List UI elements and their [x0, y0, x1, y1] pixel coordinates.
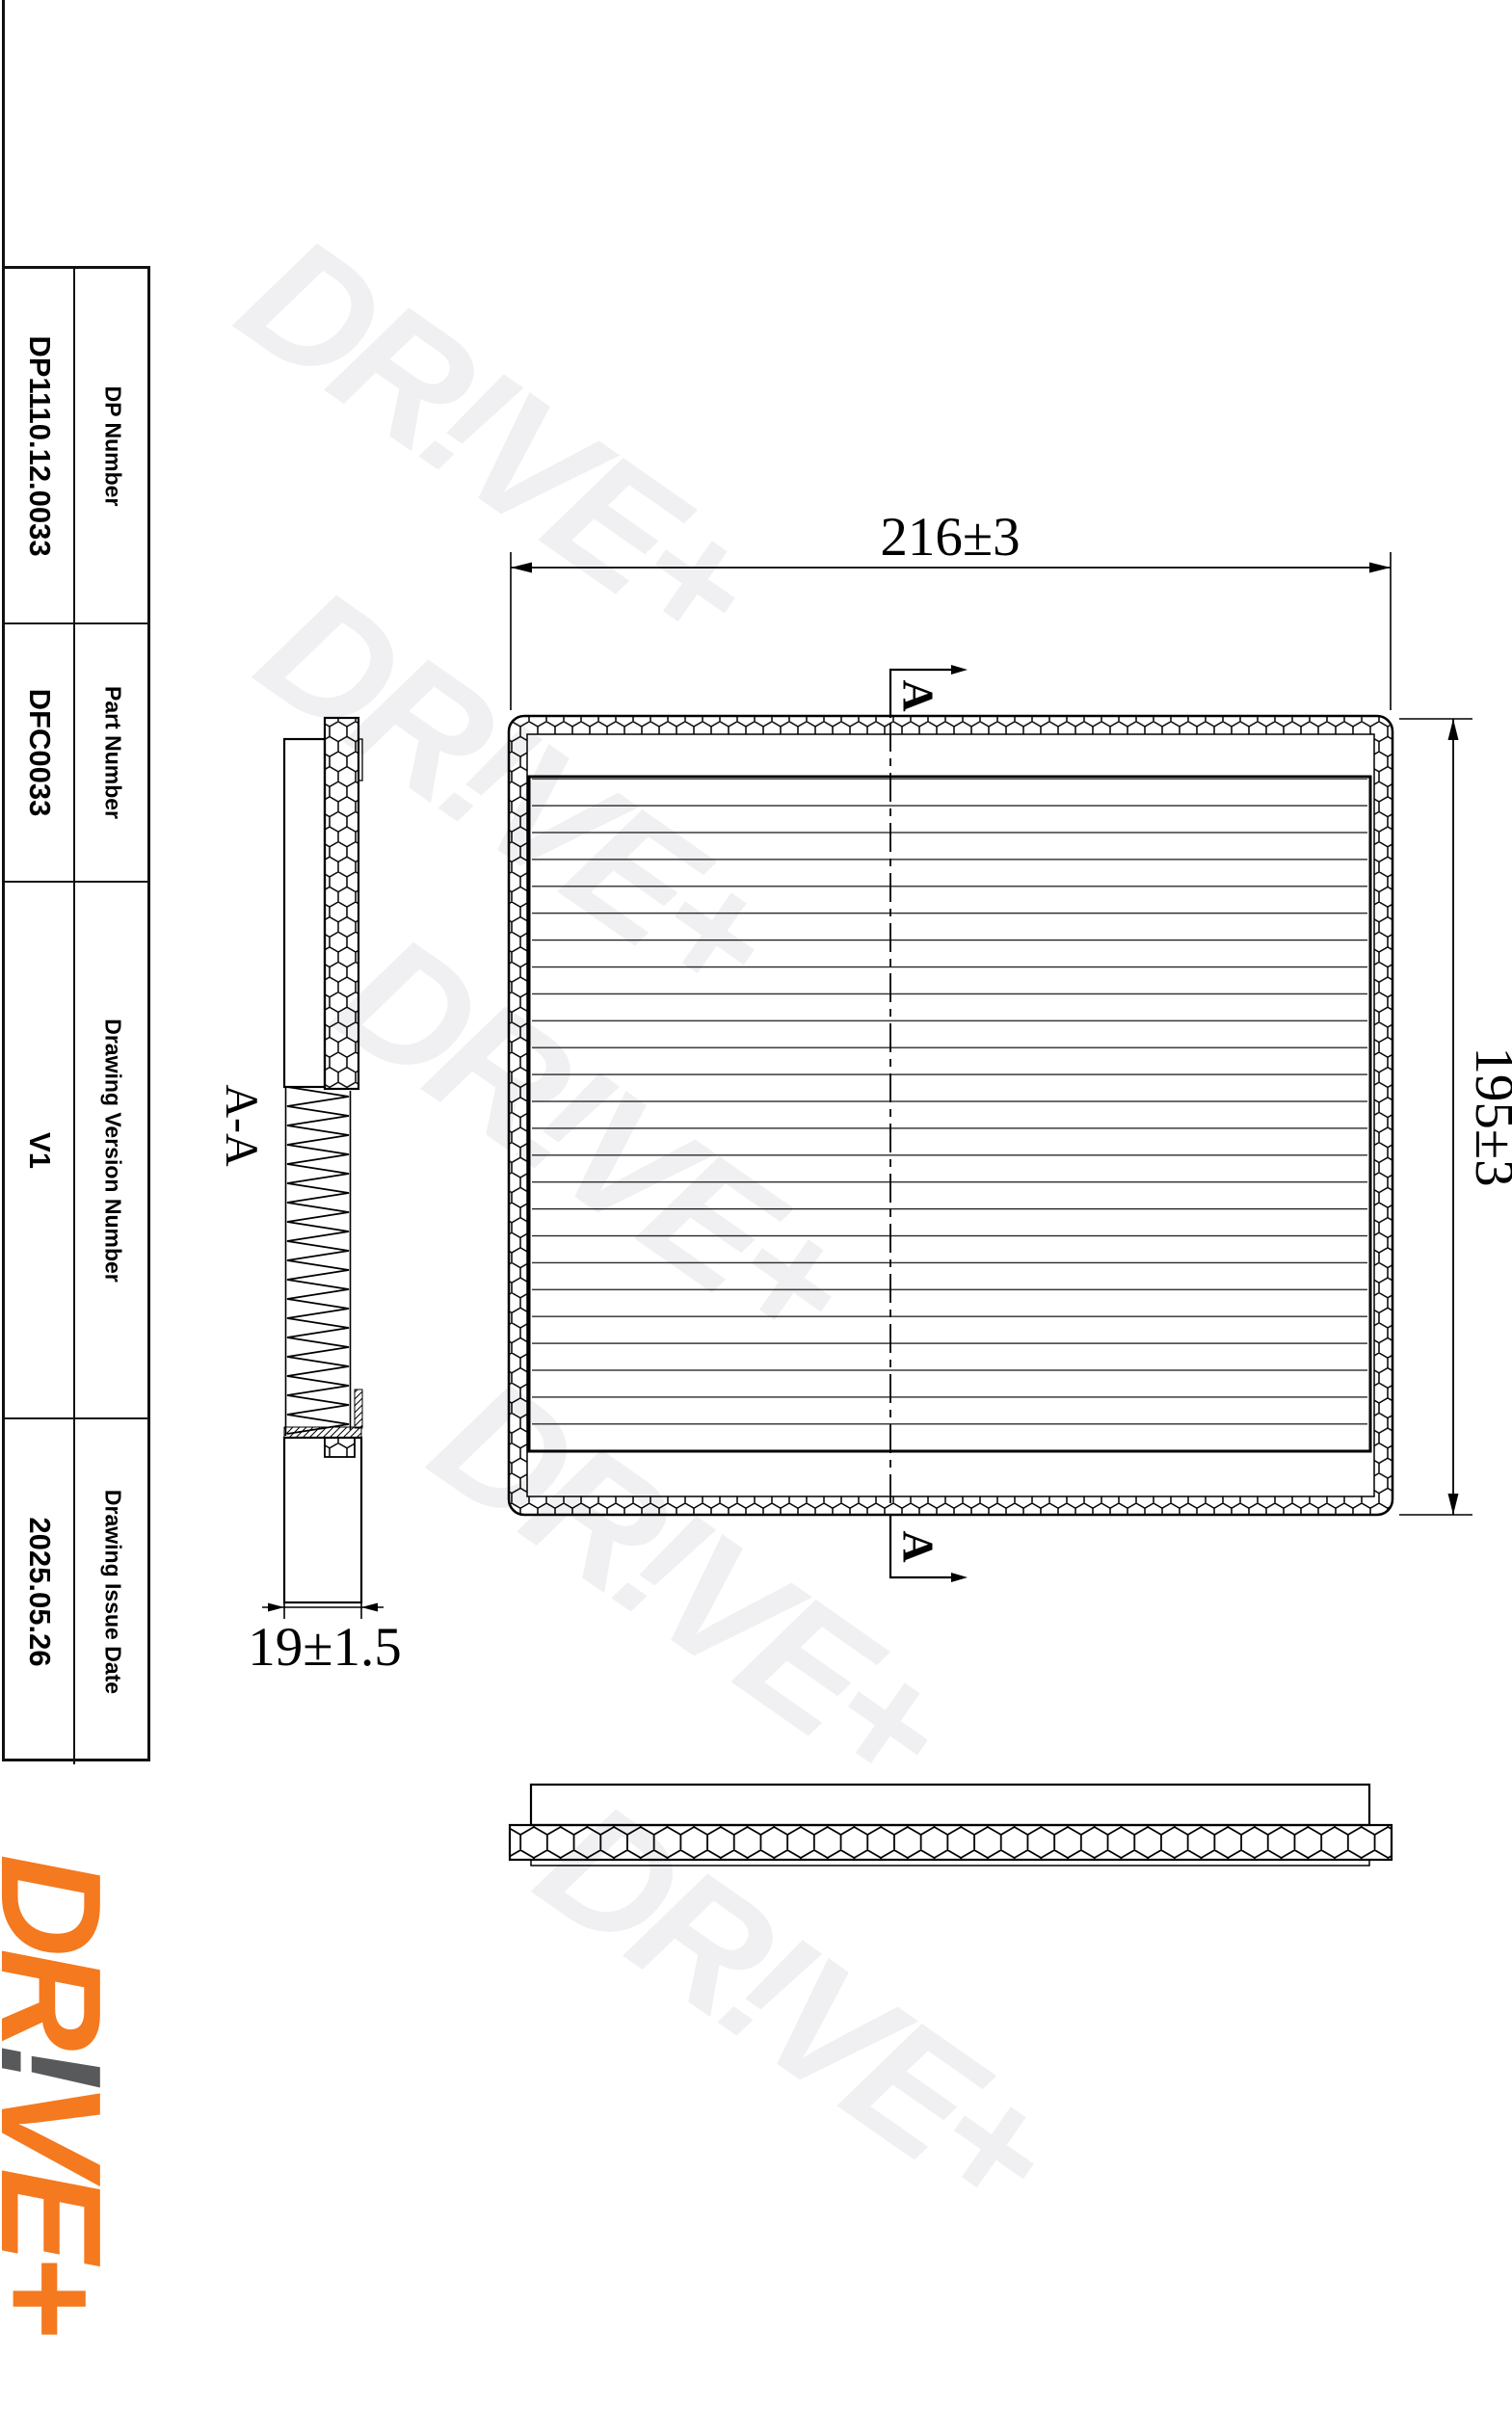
dimension-width-text: 216±3 — [880, 507, 1020, 568]
section-marker-bottom: A — [890, 1515, 968, 1582]
table-row: DFC0033 Part Number — [5, 622, 147, 881]
dp-number-value: DP1110.12.0033 — [5, 269, 75, 622]
table-row: DP1110.12.0033 DP Number — [5, 269, 147, 622]
dimension-height: 195±3 — [1399, 719, 1512, 1515]
section-view: 19±1.5 A-A — [216, 718, 402, 1678]
issue-date-value: 2025.05.26 — [5, 1419, 75, 1764]
plan-view — [509, 716, 1393, 1515]
section-view-label: A-A — [216, 1084, 267, 1167]
section-honeycomb-strip — [325, 718, 358, 1089]
table-row: 2025.05.26 Drawing Issue Date — [5, 1417, 147, 1764]
section-marker-letter: A — [893, 679, 942, 711]
logo-part2: VE+ — [0, 2081, 130, 2329]
logo-exclamation: ! — [0, 2043, 130, 2081]
section-marker-top: A — [890, 665, 968, 718]
sealing-hatch-side — [355, 1390, 362, 1428]
section-honeycomb-block — [325, 1438, 355, 1457]
drawing-page: DR!VE+ DR!VE+ DR!VE+ DR!VE+ DR!VE+ DP111… — [0, 0, 1512, 2409]
logo-part1: DR — [0, 1854, 130, 2043]
section-marker-letter: A — [893, 1530, 942, 1562]
dimension-width: 216±3 — [511, 507, 1391, 710]
table-row: V1 Drawing Version Number — [5, 881, 147, 1417]
issue-date-label: Drawing Issue Date — [77, 1419, 147, 1764]
title-block: DP1110.12.0033 DP Number DFC0033 Part Nu… — [2, 266, 150, 1761]
dimension-thickness-text: 19±1.5 — [248, 1617, 402, 1678]
page-left-border — [2, 0, 5, 269]
plan-pleat-area — [532, 779, 1367, 1449]
dimension-height-text: 195±3 — [1464, 1046, 1512, 1186]
pleat-zigzag — [287, 1087, 349, 1434]
sealing-hatch — [284, 1427, 361, 1438]
front-view — [510, 1785, 1392, 1866]
front-honeycomb-band — [510, 1825, 1392, 1860]
drawing-version-label: Drawing Version Number — [77, 883, 147, 1417]
part-number-label: Part Number — [77, 624, 147, 881]
filter-drawing: A A 216±3 195±3 — [0, 0, 1512, 2409]
brand-logo: DR!VE+ — [0, 1854, 132, 2329]
drawing-version-value: V1 — [5, 883, 75, 1417]
dp-number-label: DP Number — [77, 269, 147, 622]
part-number-value: DFC0033 — [5, 624, 75, 881]
